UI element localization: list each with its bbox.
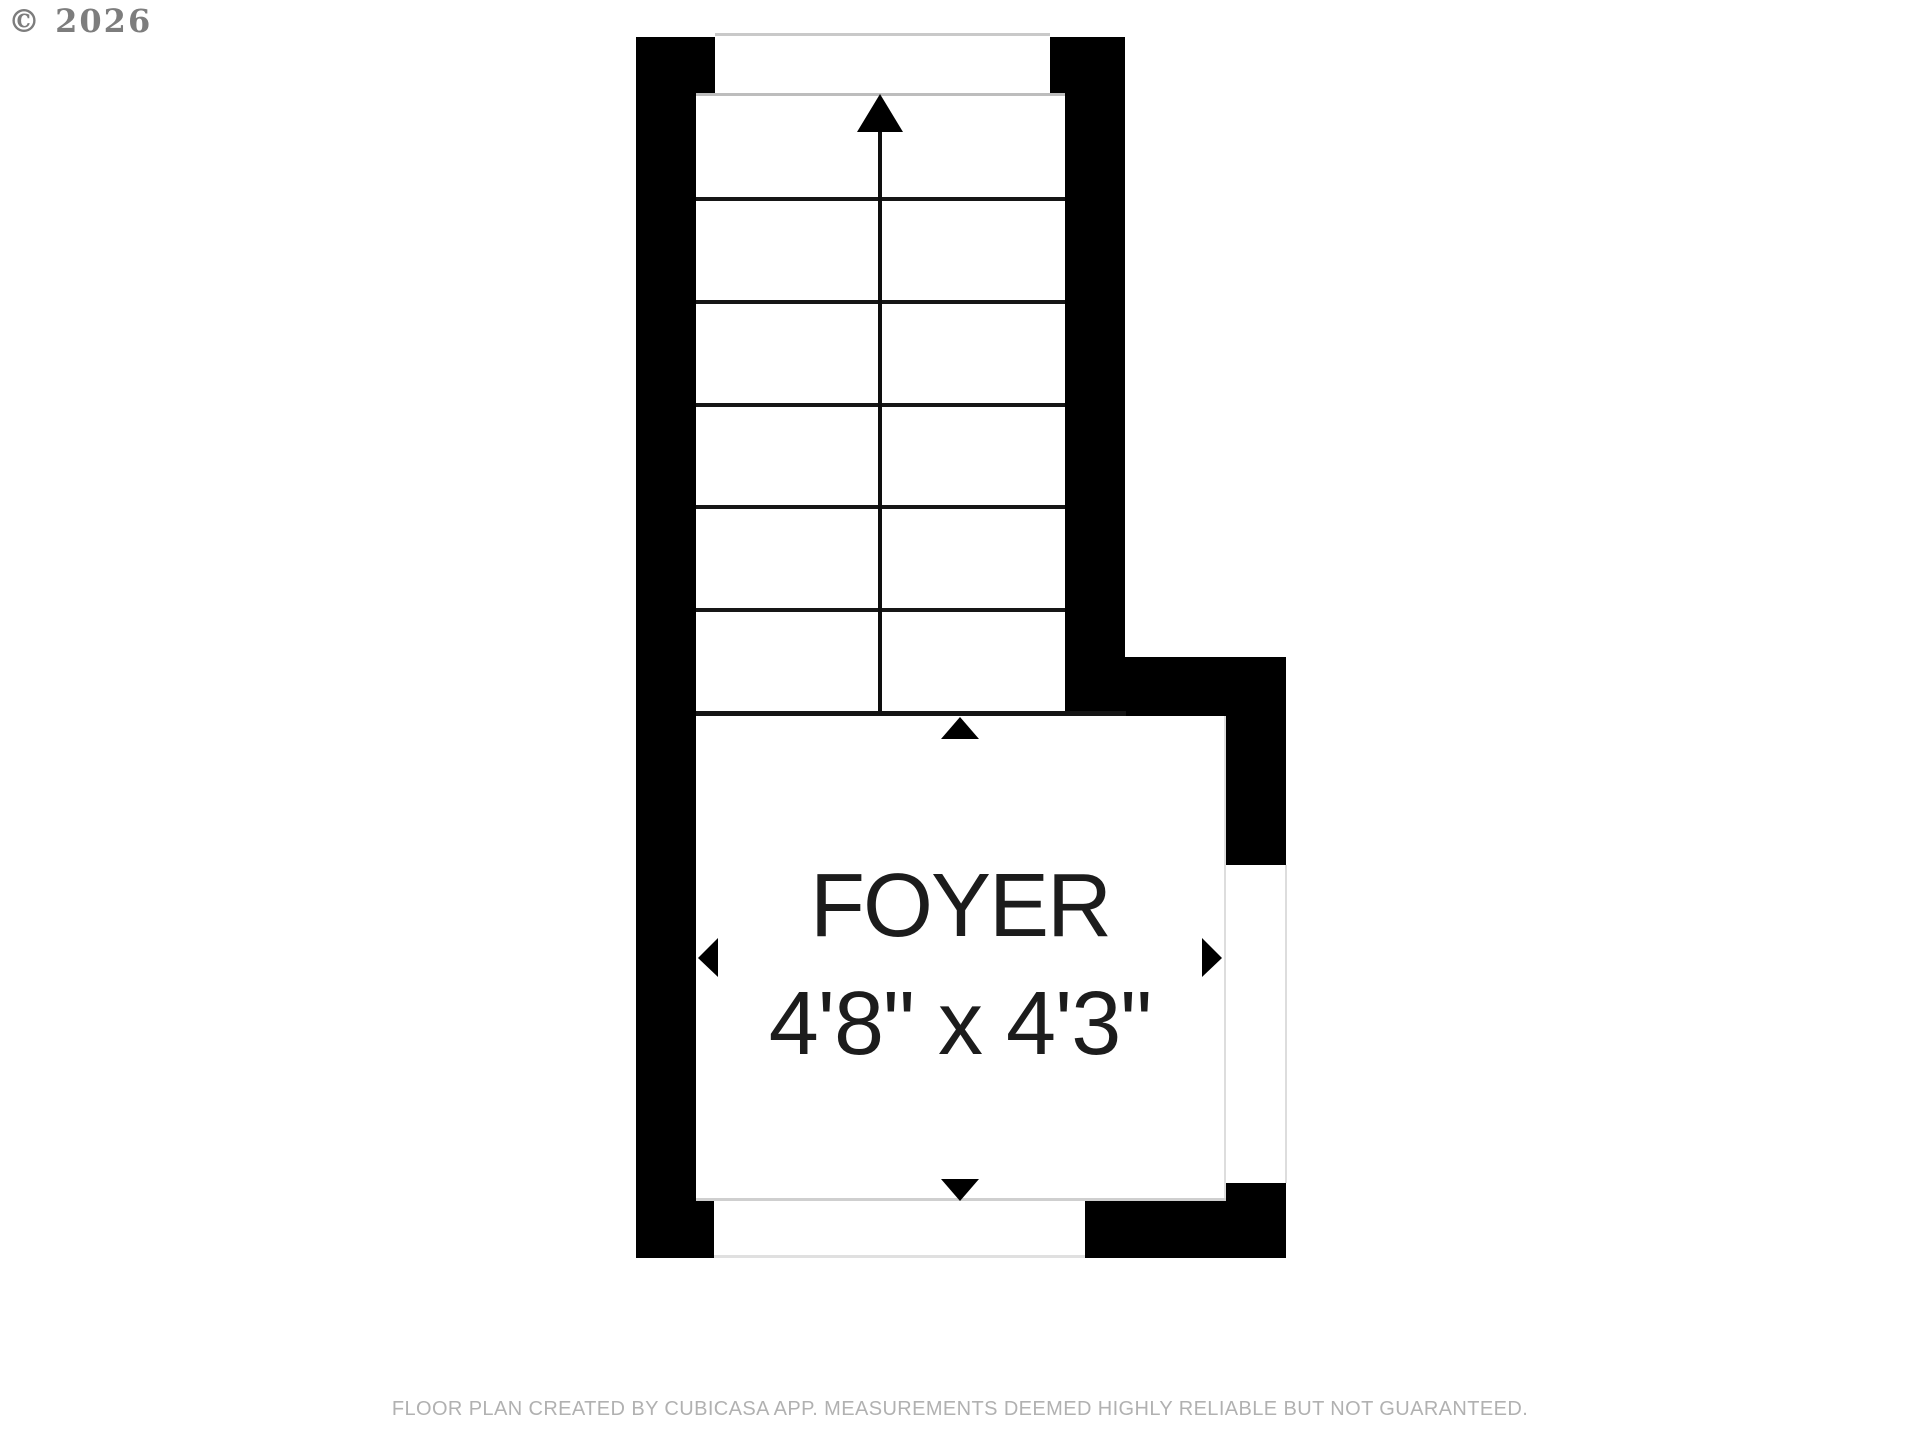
entry-opening-line: [714, 1255, 1085, 1258]
wall-right-stair: [1065, 37, 1125, 716]
triangle-up-icon: [941, 717, 979, 739]
stair-bottom-edge-line: [696, 711, 1126, 716]
wall-bottom-left-block: [636, 1198, 714, 1258]
room-name: FOYER: [660, 860, 1260, 952]
stair-center-line: [878, 128, 882, 716]
footer-disclaimer: FLOOR PLAN CREATED BY CUBICASA APP. MEAS…: [0, 1398, 1920, 1421]
floor-plan-page: © 2026 FOYER 4'8" x 4'3" FLOOR PLAN CREA…: [0, 0, 1920, 1440]
wall-bottom-right-block: [1085, 1198, 1286, 1258]
top-opening-line: [715, 33, 1050, 36]
room-label: FOYER 4'8" x 4'3": [660, 860, 1260, 1070]
room-dimensions: 4'8" x 4'3": [660, 978, 1260, 1070]
right-opening-outer-line: [1285, 865, 1287, 1183]
copyright-watermark: © 2026: [8, 2, 152, 40]
wall-right-upper: [1226, 716, 1286, 865]
wall-top-left-block: [636, 37, 715, 95]
wall-step-band: [1125, 657, 1286, 716]
up-arrow-icon: [857, 94, 903, 132]
triangle-down-icon: [941, 1179, 979, 1201]
wall-top-right-block: [1050, 37, 1125, 95]
